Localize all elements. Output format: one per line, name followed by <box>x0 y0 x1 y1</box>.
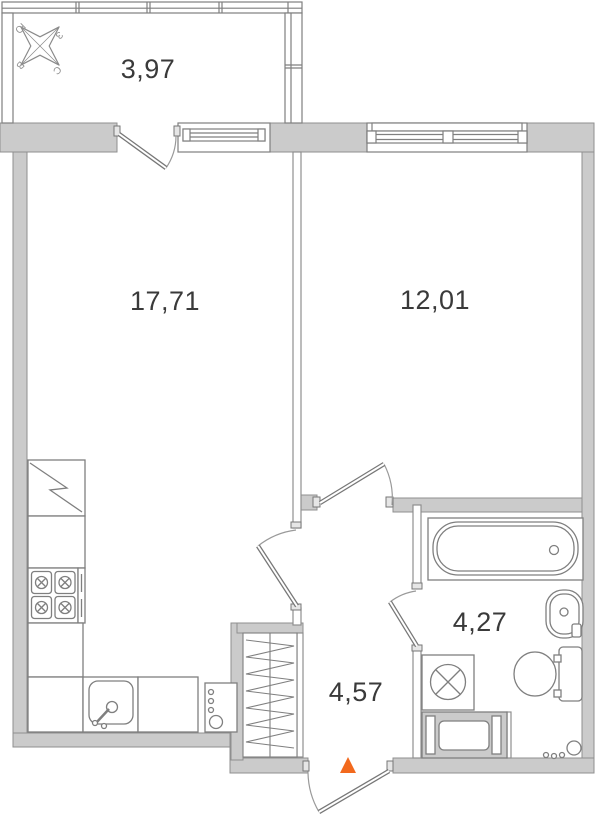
bathtub-icon <box>428 518 583 580</box>
window-bedroom <box>367 123 527 152</box>
ventilation-duct <box>422 712 507 758</box>
balcony-door <box>114 126 180 168</box>
wardrobe-icon <box>243 633 297 757</box>
washbasin-icon <box>546 590 583 638</box>
kitchen-cabinet <box>28 516 85 568</box>
floor-plan: Ю З В С 3,97 17,71 12,01 4,27 4,57 <box>0 0 600 818</box>
kitchen-counter <box>138 677 198 732</box>
living-room-door <box>258 522 301 610</box>
bathroom-area-label: 4,27 <box>415 606 545 638</box>
toilet-icon <box>514 647 582 701</box>
bathroom-fixtures <box>422 518 583 759</box>
pipe-risers-icon <box>544 741 582 759</box>
partition-walls <box>293 152 511 758</box>
bedroom-door <box>313 464 393 507</box>
kitchen-sink-icon <box>83 677 138 732</box>
hallway-area-label: 4,57 <box>291 676 421 708</box>
balcony-area-label: 3,97 <box>83 53 213 85</box>
compass-north-letter: С <box>50 63 63 76</box>
window-living-room <box>178 123 270 152</box>
kitchen-corner-cabinet <box>28 677 83 732</box>
kitchen <box>28 460 237 732</box>
washing-machine-icon <box>422 655 474 710</box>
stove-icon <box>28 568 85 623</box>
bedroom-area-label: 12,01 <box>370 284 500 316</box>
kitchen-cabinet <box>28 623 83 677</box>
living-room-area-label: 17,71 <box>100 285 230 317</box>
water-heater-icon <box>205 683 237 732</box>
entrance-marker <box>340 757 356 773</box>
